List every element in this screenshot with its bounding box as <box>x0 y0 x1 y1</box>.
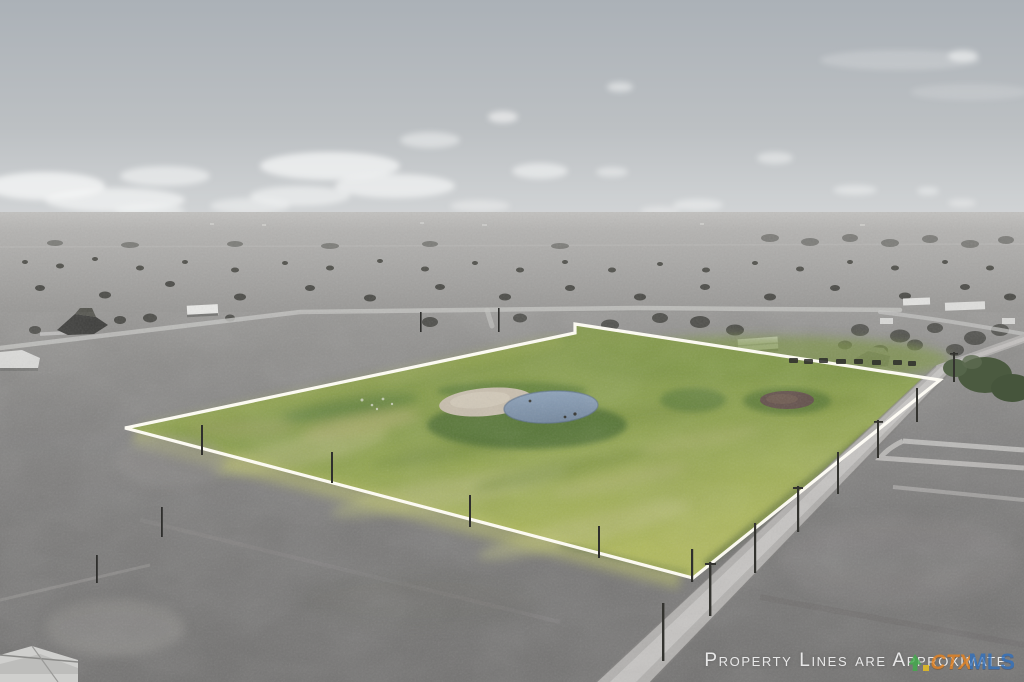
photo-canvas <box>0 0 1024 682</box>
aerial-photo: Property Lines are Approximate CTX MLS <box>0 0 1024 682</box>
logo-ctx: CTX <box>931 652 973 673</box>
mls-logo: CTX MLS <box>909 651 1015 673</box>
tree-icon <box>909 654 922 671</box>
photo-grain <box>0 212 1024 682</box>
tree-icon-accent <box>923 665 929 671</box>
logo-mls: MLS <box>969 651 1015 673</box>
